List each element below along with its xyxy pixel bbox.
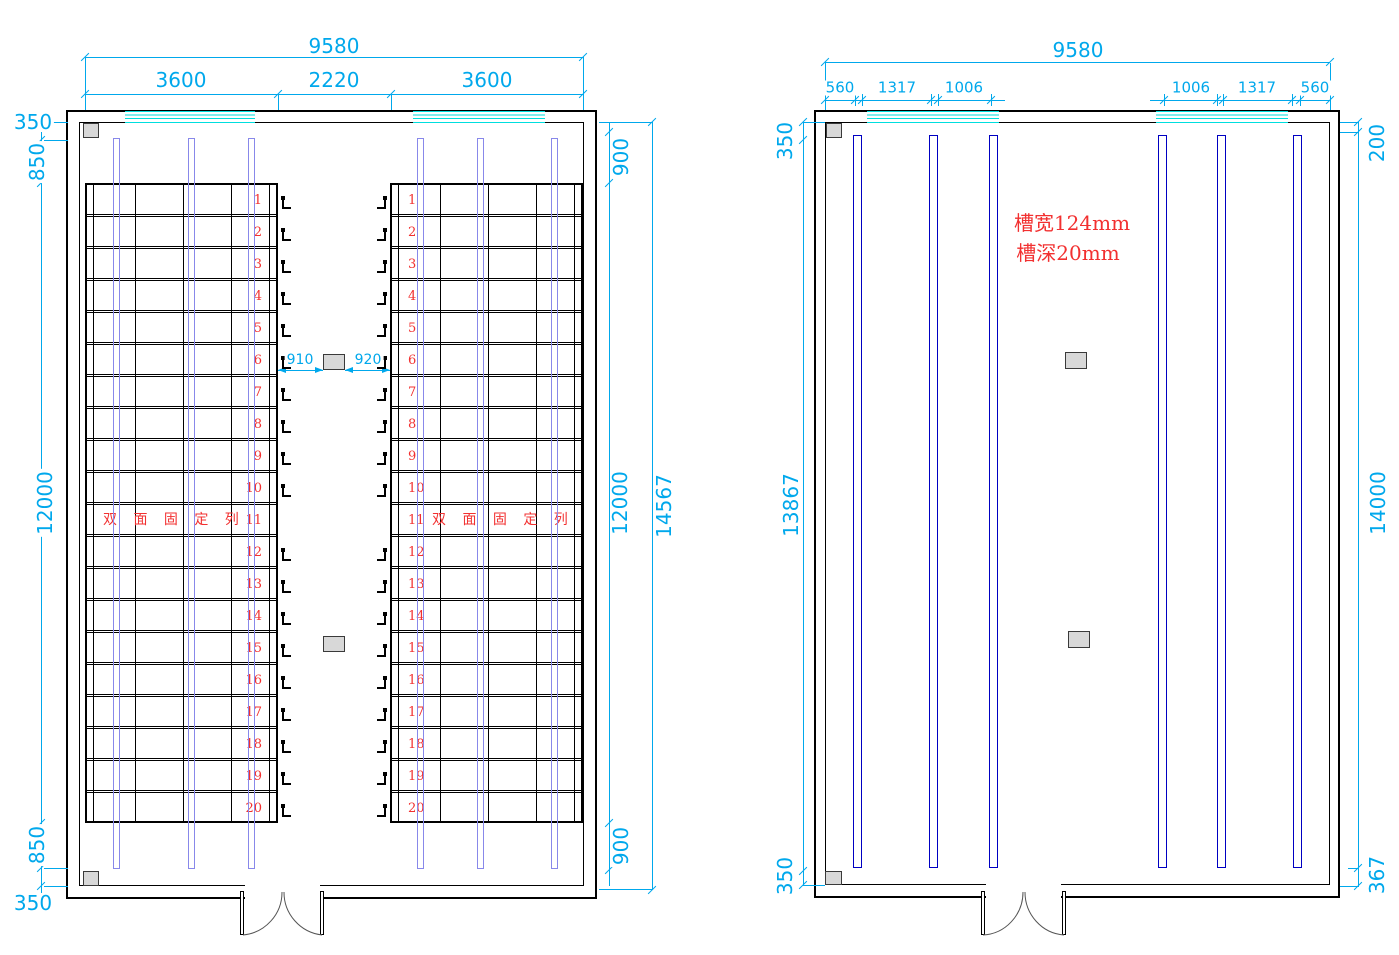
crank-handle-icon [281,452,292,468]
shape [377,399,386,401]
shape [282,431,291,433]
crank-handle-icon [281,708,292,724]
row-number: 1 [408,194,416,207]
bank-fixed-label: 双 面 固 定 列 [103,513,245,527]
floor-plan-drawing: 9580 3600 2220 3600 350 850 12000 850 35… [0,0,1399,955]
dim-right-1006-right: 1006 [1170,81,1212,96]
shape [282,495,291,497]
dimension-line [391,95,392,110]
shape [282,591,291,593]
shape [282,335,291,337]
crank-handle-icon [281,196,292,212]
right-plan-inner-wall [825,122,1330,885]
dimension-line [583,58,584,110]
row-number: 4 [408,290,416,303]
crank-handle-icon [376,708,387,724]
shape [282,687,291,689]
shape [282,271,291,273]
note-slot-depth: 槽深20mm [1016,243,1119,263]
dim-left-overall-height: 14567 [654,472,674,540]
dim-right-chain-900-bottom: 900 [611,825,631,867]
crank-handle-icon [281,612,292,628]
crank-handle-icon [376,260,387,276]
crank-handle-icon [376,740,387,756]
crank-handle-icon [376,676,387,692]
crank-handle-icon [281,388,292,404]
rail [248,138,255,869]
dim-right-560-left: 560 [824,81,857,96]
crank-handle-icon [281,420,292,436]
shape [282,655,291,657]
dimension-line [803,885,825,886]
shape [282,239,291,241]
rail [113,138,120,869]
column [1068,631,1090,648]
shape [282,623,291,625]
door-leaf [1062,891,1066,935]
dim-left-segment-2: 2220 [307,70,362,90]
track-slot [853,135,862,868]
crank-handle-icon [281,580,292,596]
track-slot [1158,135,1167,868]
right-plan-door-opening [986,882,1061,902]
dim-rp-left-350-top: 350 [775,120,795,162]
track-slot [929,135,938,868]
crank-handle-icon [281,484,292,500]
dim-left-chain-850-bottom: 850 [27,824,47,866]
shape [377,655,386,657]
dim-right-chain-900-top: 900 [611,136,631,178]
row-number: 2 [408,226,416,239]
shape [377,783,386,785]
dimension-line [599,889,652,890]
dimension-line [803,122,804,885]
row-number: 9 [408,450,416,463]
row-number: 6 [408,354,416,367]
crank-handle-icon [376,548,387,564]
shape [377,431,386,433]
crank-handle-icon [376,772,387,788]
dim-left-overall-width: 9580 [307,36,362,56]
window [1156,111,1288,123]
dimension-line [278,95,279,110]
dim-right-chain-12000: 12000 [610,469,630,537]
dimension-line [1358,122,1359,887]
column [825,871,842,885]
dim-left-chain-850-top: 850 [27,141,47,183]
shape [377,495,386,497]
dimension-line [44,868,68,869]
dimension-line [1150,100,1330,101]
row-number: 7 [408,386,416,399]
shape [282,815,291,817]
shape [282,399,291,401]
shape [377,207,386,209]
crank-handle-icon [281,644,292,660]
left-plan-door-opening [245,882,320,902]
dim-left-chain-12000: 12000 [35,469,55,537]
track-slot [1217,135,1226,868]
row-number: 8 [408,418,416,431]
crank-handle-icon [281,772,292,788]
dim-right-1317-right: 1317 [1236,81,1278,96]
door-leaf [320,891,324,935]
shape [377,591,386,593]
dim-rp-left-13867: 13867 [781,471,801,539]
crank-handle-icon [376,292,387,308]
shape [377,751,386,753]
shape [377,303,386,305]
shape [377,335,386,337]
crank-handle-icon [281,548,292,564]
shape [377,463,386,465]
shape [282,751,291,753]
column [323,636,345,652]
crank-handle-icon [376,484,387,500]
shape [282,559,291,561]
dimension-line [825,62,1330,63]
dim-left-chain-350-bottom: 350 [12,893,54,913]
shape [282,303,291,305]
rail [188,138,195,869]
dim-left-segment-1: 3600 [154,70,209,90]
rail [551,138,558,869]
crank-handle-icon [376,420,387,436]
crank-handle-icon [376,388,387,404]
shape [377,815,386,817]
dimension-line [85,94,584,95]
crank-handle-icon [281,324,292,340]
shape [282,783,291,785]
shape [377,559,386,561]
dim-rp-right-367: 367 [1367,854,1387,896]
crank-handle-icon [281,676,292,692]
dimension-line [44,140,68,141]
shape [282,207,291,209]
shape [377,719,386,721]
dim-left-segment-3: 3600 [460,70,515,90]
column [83,871,99,886]
crank-handle-icon [376,324,387,340]
dim-right-560-right: 560 [1299,81,1332,96]
shape [282,463,291,465]
window [867,111,999,123]
row-number: 3 [408,258,416,271]
rail [417,138,424,869]
dimension-line [803,122,825,123]
shape [377,623,386,625]
window [125,111,255,123]
note-slot-width: 槽宽124mm [1014,213,1130,233]
dimension-line [85,58,86,110]
door-leaf [981,891,985,935]
door-leaf [240,891,244,935]
dimension-line [44,886,68,887]
dim-left-chain-350-top: 350 [12,112,54,132]
track-slot [1293,135,1302,868]
dim-right-1006-left: 1006 [943,81,985,96]
column [1065,352,1087,369]
dim-rp-left-350-bottom: 350 [775,855,795,897]
crank-handle-icon [281,740,292,756]
crank-handle-icon [376,228,387,244]
dimension-line [599,122,652,123]
crank-handle-icon [376,580,387,596]
window [413,111,545,123]
crank-handle-icon [376,612,387,628]
row-number: 5 [408,322,416,335]
dim-aisle-910: 910 [285,353,316,367]
column [83,123,99,138]
crank-handle-icon [281,292,292,308]
crank-handle-icon [376,804,387,820]
dim-aisle-920: 920 [353,353,384,367]
crank-handle-icon [281,804,292,820]
track-slot [989,135,998,868]
column [826,123,842,138]
shape [377,239,386,241]
column [323,354,345,370]
shape [282,719,291,721]
shape [377,687,386,689]
crank-handle-icon [281,228,292,244]
dim-right-overall-width: 9580 [1051,40,1106,60]
dim-right-1317-left: 1317 [876,81,918,96]
crank-handle-icon [376,196,387,212]
dim-rp-right-14000: 14000 [1368,469,1388,537]
dim-rp-right-200: 200 [1367,122,1387,164]
crank-handle-icon [376,452,387,468]
crank-handle-icon [281,260,292,276]
rail [477,138,484,869]
shape [377,271,386,273]
crank-handle-icon [376,644,387,660]
